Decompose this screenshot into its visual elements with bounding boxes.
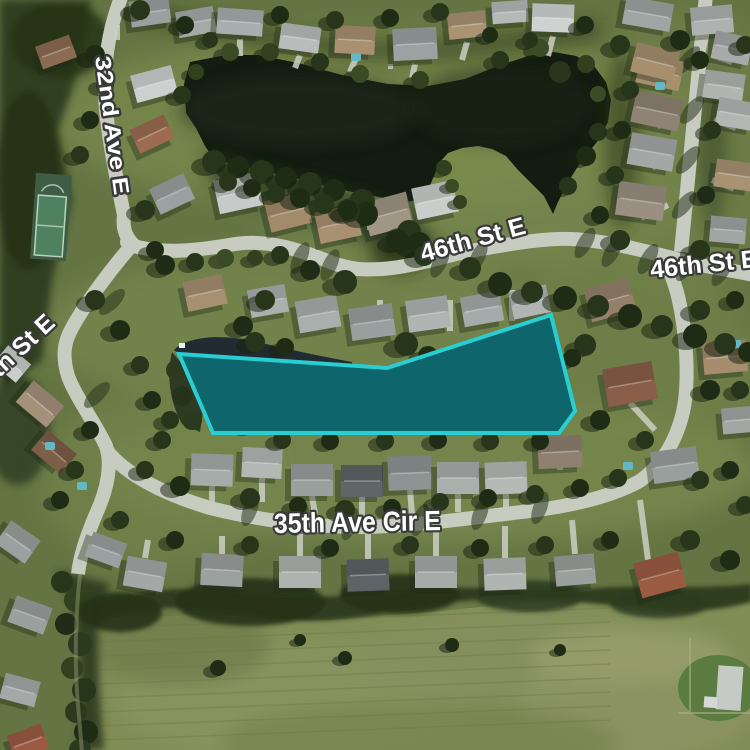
svg-text:35th Ave Cir E: 35th Ave Cir E xyxy=(274,505,442,539)
